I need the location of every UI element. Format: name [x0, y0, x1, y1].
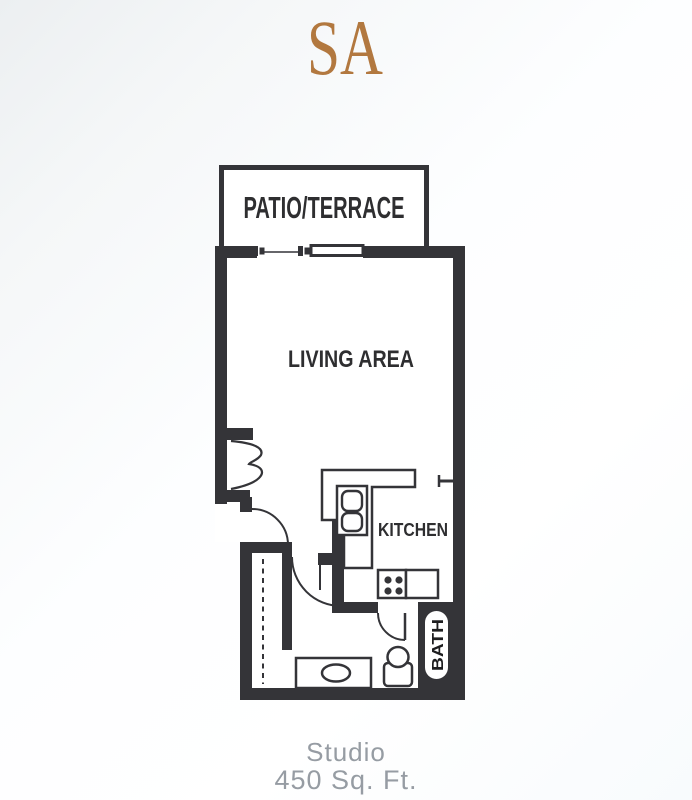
floorplan-svg: SA PATIO/TERRACE — [0, 0, 692, 800]
wall-left-upper — [215, 246, 227, 504]
vanity-sink — [322, 665, 350, 682]
entry-jamb — [240, 497, 252, 512]
toilet — [384, 647, 412, 686]
unit-code-title: SA — [307, 4, 383, 91]
stove — [378, 570, 406, 598]
wall-top-right — [363, 246, 465, 258]
closet-stub-upper — [227, 428, 253, 440]
bath-north-wall — [332, 602, 378, 613]
living-area-label: LIVING AREA — [288, 346, 414, 373]
hall-door-header — [318, 553, 332, 565]
closet-right-wall — [282, 553, 292, 650]
floorplan-page: SA PATIO/TERRACE — [0, 0, 692, 800]
wall-left-lower — [240, 542, 252, 700]
patio-label: PATIO/TERRACE — [244, 190, 405, 225]
kitchen-label: KITCHEN — [378, 520, 448, 540]
sink-basin-top — [342, 491, 362, 511]
bath-label: BATH — [430, 619, 447, 671]
caption-area: 450 Sq. Ft. — [274, 765, 417, 795]
sliding-door-panel — [311, 246, 363, 256]
caption-unit-type: Studio — [306, 737, 386, 767]
sink-basin-bottom — [342, 513, 362, 531]
side-counter — [406, 570, 438, 598]
